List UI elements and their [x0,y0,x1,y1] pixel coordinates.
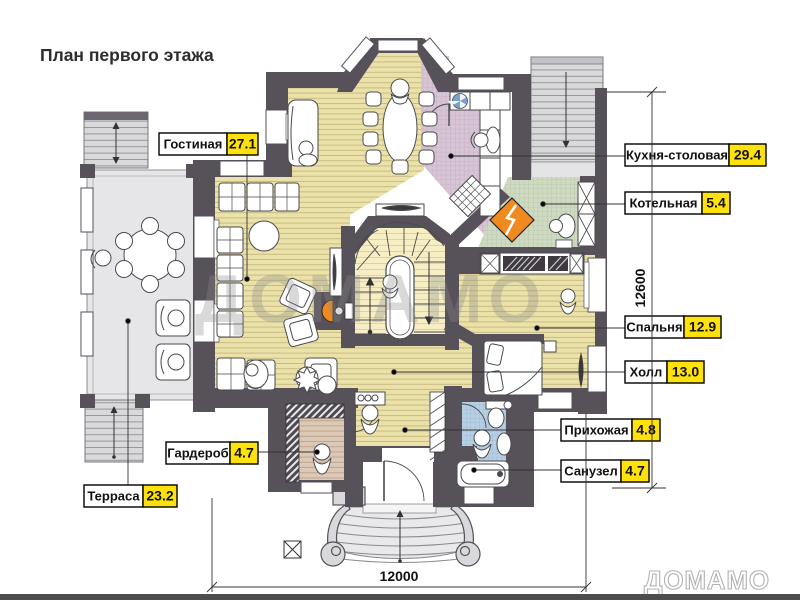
svg-text:Котельная: Котельная [629,196,697,211]
svg-text:4.8: 4.8 [636,422,656,438]
svg-text:4.7: 4.7 [625,463,645,479]
svg-text:План первого этажа: План первого этажа [40,45,214,65]
svg-text:Холл: Холл [630,365,663,380]
svg-text:4.7: 4.7 [234,445,254,461]
svg-text:12000: 12000 [380,568,419,584]
svg-text:5.4: 5.4 [706,195,726,211]
svg-text:23.2: 23.2 [146,488,173,504]
svg-text:13.0: 13.0 [672,364,699,380]
svg-text:12.9: 12.9 [689,319,716,335]
svg-text:Гардероб: Гардероб [167,446,228,461]
svg-text:Спальня: Спальня [626,320,682,335]
svg-text:ДОМАМО: ДОМАМО [644,565,770,595]
svg-text:29.4: 29.4 [734,147,761,163]
svg-text:12600: 12600 [632,268,648,307]
svg-text:ДОМАМО: ДОМАМО [195,261,548,337]
svg-text:Гостиная: Гостиная [164,137,223,152]
svg-text:Санузел: Санузел [564,464,617,479]
svg-text:Кухня-столовая: Кухня-столовая [626,148,728,163]
svg-text:Терраса: Терраса [87,489,140,504]
svg-text:27.1: 27.1 [229,136,256,152]
svg-text:Прихожая: Прихожая [564,423,628,438]
